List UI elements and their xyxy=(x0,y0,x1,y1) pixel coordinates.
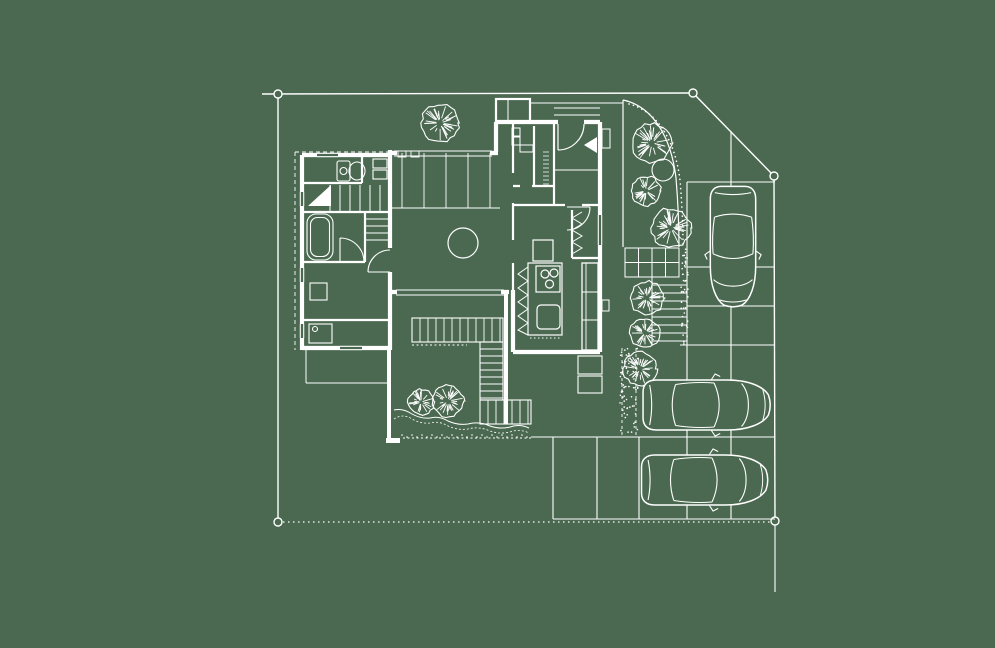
background xyxy=(0,0,995,648)
screenshot-stage xyxy=(0,0,995,648)
boundary-corner-marker xyxy=(771,517,779,525)
boundary-corner-marker xyxy=(274,90,282,98)
car xyxy=(705,186,761,306)
site-plan-drawing xyxy=(0,0,995,648)
boundary-corner-marker xyxy=(770,172,778,180)
car xyxy=(642,449,768,511)
boundary-corner-marker xyxy=(274,518,282,526)
car xyxy=(643,374,770,436)
boundary-corner-marker xyxy=(689,89,697,97)
